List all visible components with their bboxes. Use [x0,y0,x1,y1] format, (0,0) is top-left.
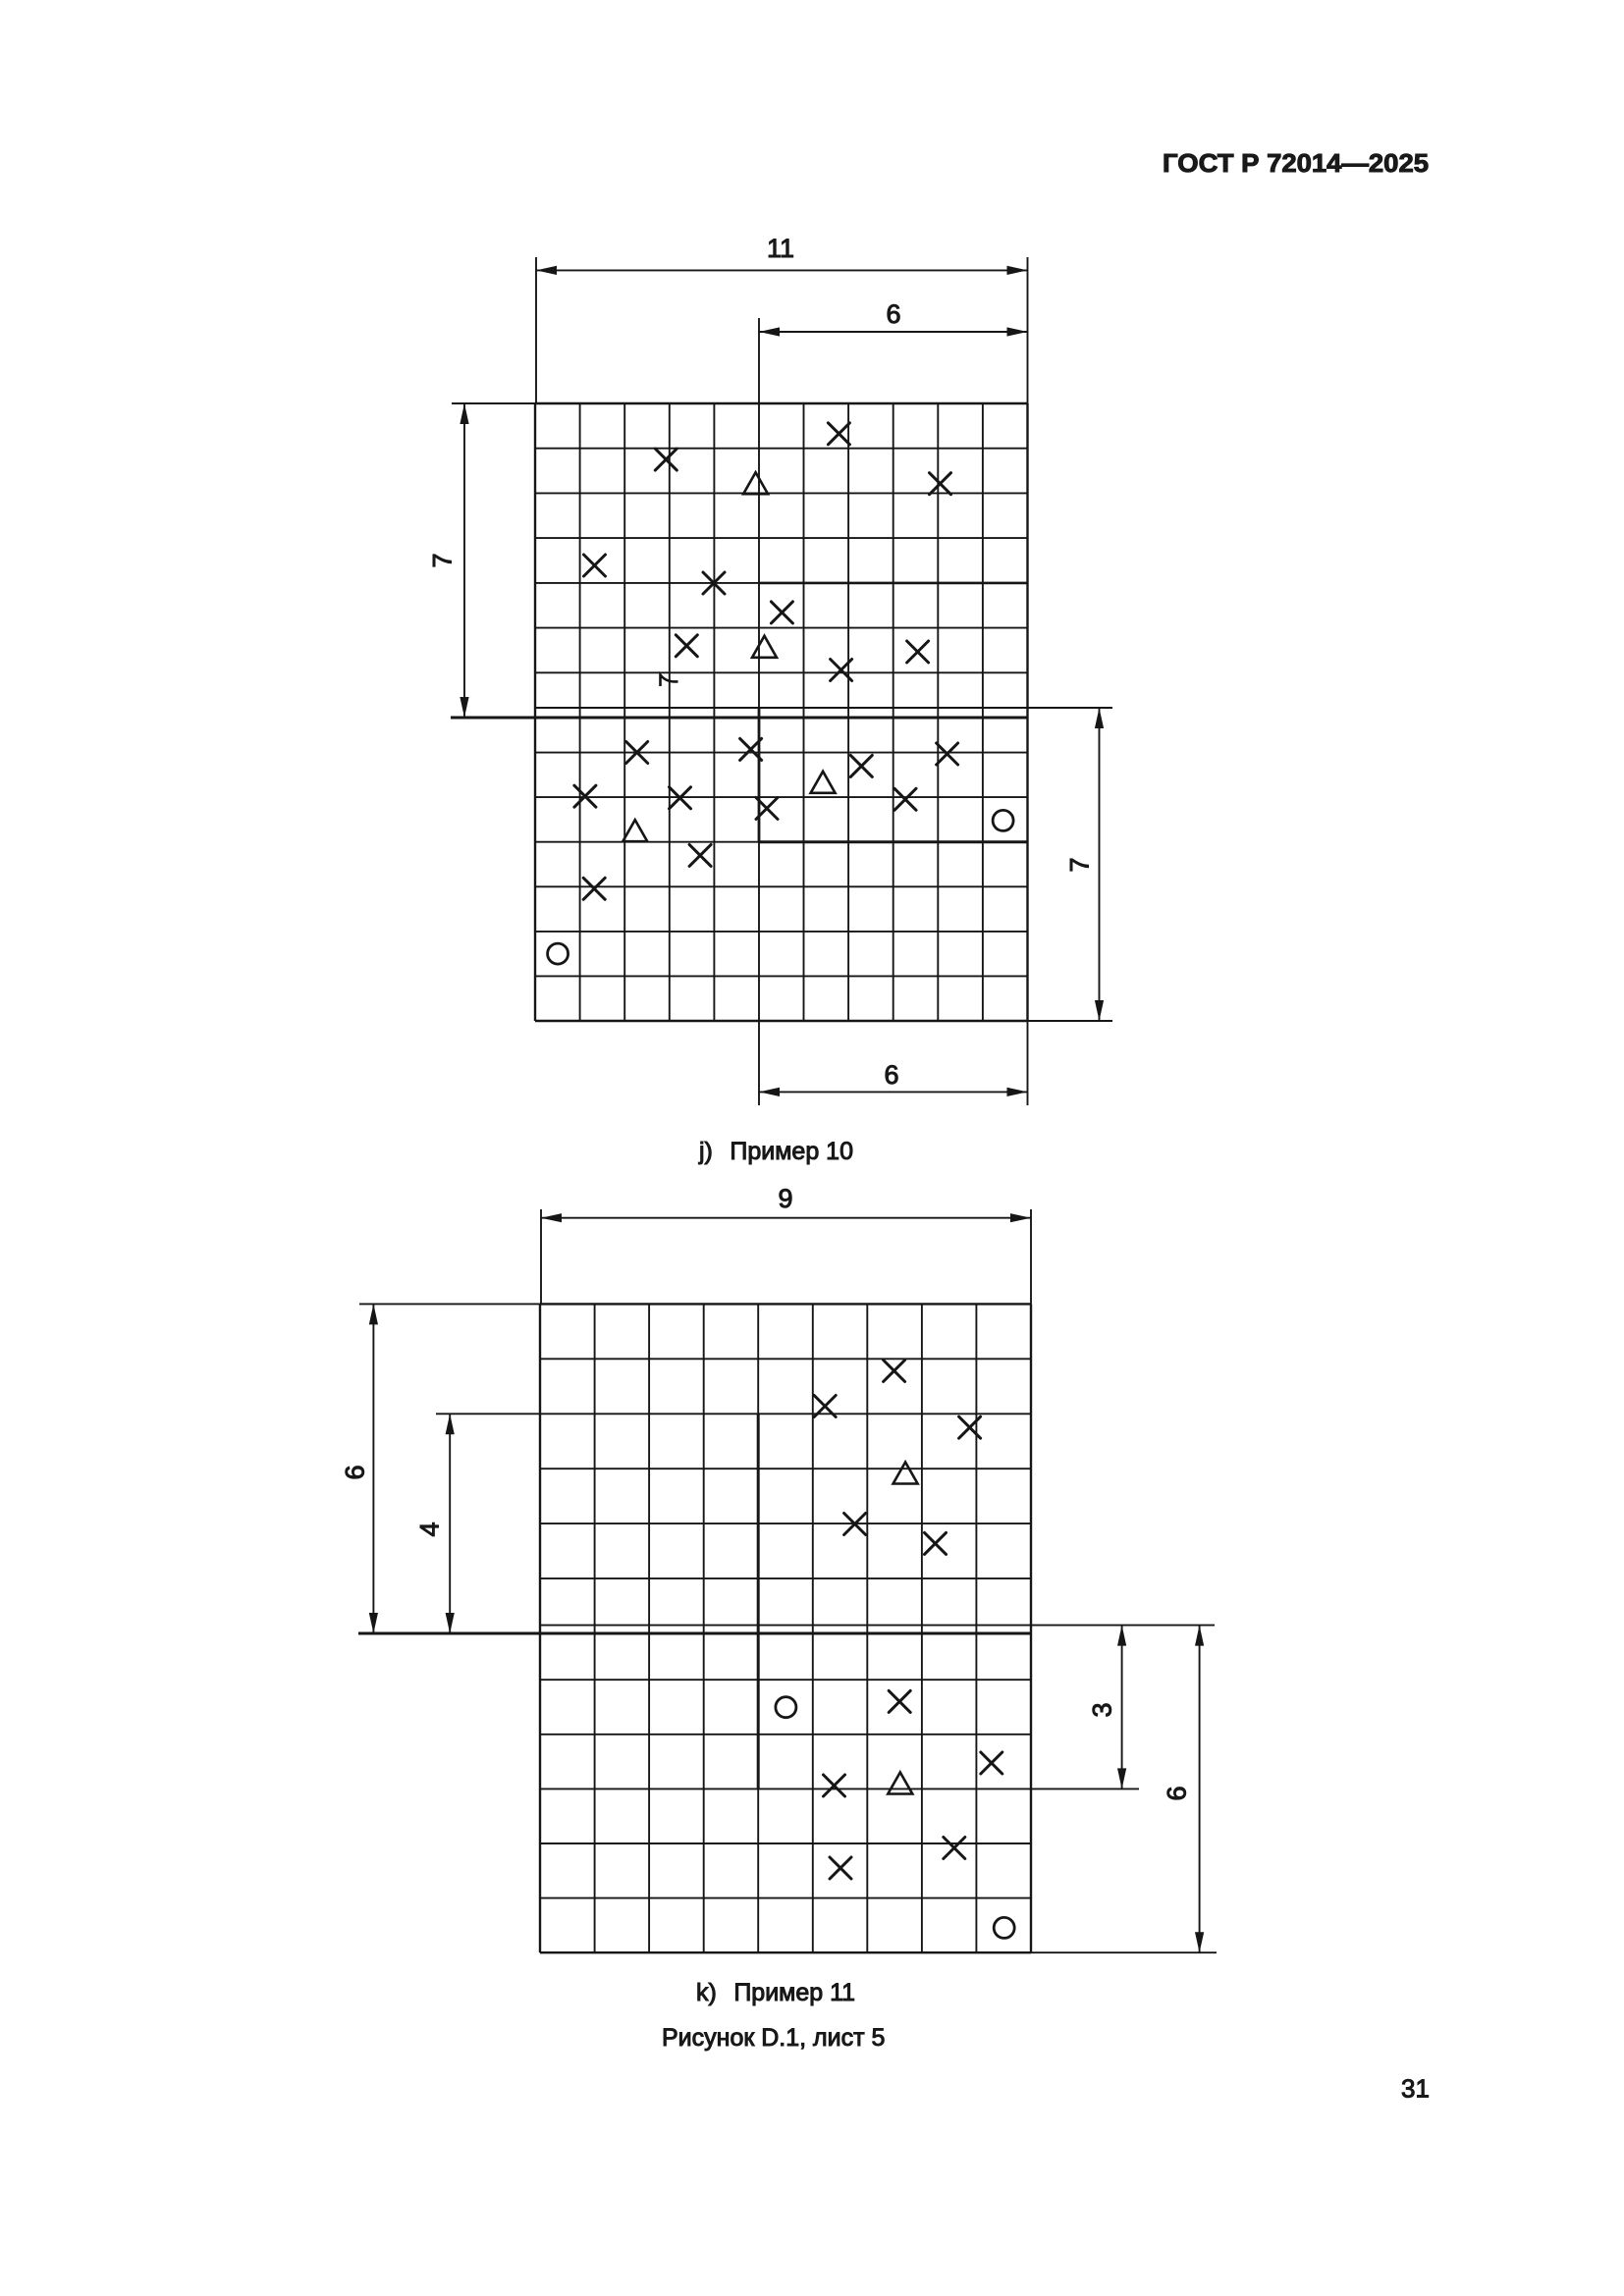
svg-text:31: 31 [1401,2074,1430,2104]
svg-text:6: 6 [341,1465,370,1479]
svg-text:7: 7 [1065,857,1095,872]
svg-text:4: 4 [415,1522,445,1536]
svg-text:j) Пример 10: j) Пример 10 [698,1138,853,1165]
svg-text:6: 6 [884,1060,898,1090]
svg-text:k) Пример 11: k) Пример 11 [696,1979,855,2006]
svg-text:6: 6 [1163,1786,1192,1800]
svg-text:6: 6 [886,299,900,329]
svg-text:9: 9 [778,1184,792,1213]
svg-text:Рисунок D.1, лист 5: Рисунок D.1, лист 5 [662,2024,885,2052]
svg-text:3: 3 [1088,1702,1117,1717]
svg-text:ГОСТ Р 72014—2025: ГОСТ Р 72014—2025 [1163,148,1429,178]
svg-text:7: 7 [428,553,458,567]
svg-text:11: 11 [767,234,794,263]
